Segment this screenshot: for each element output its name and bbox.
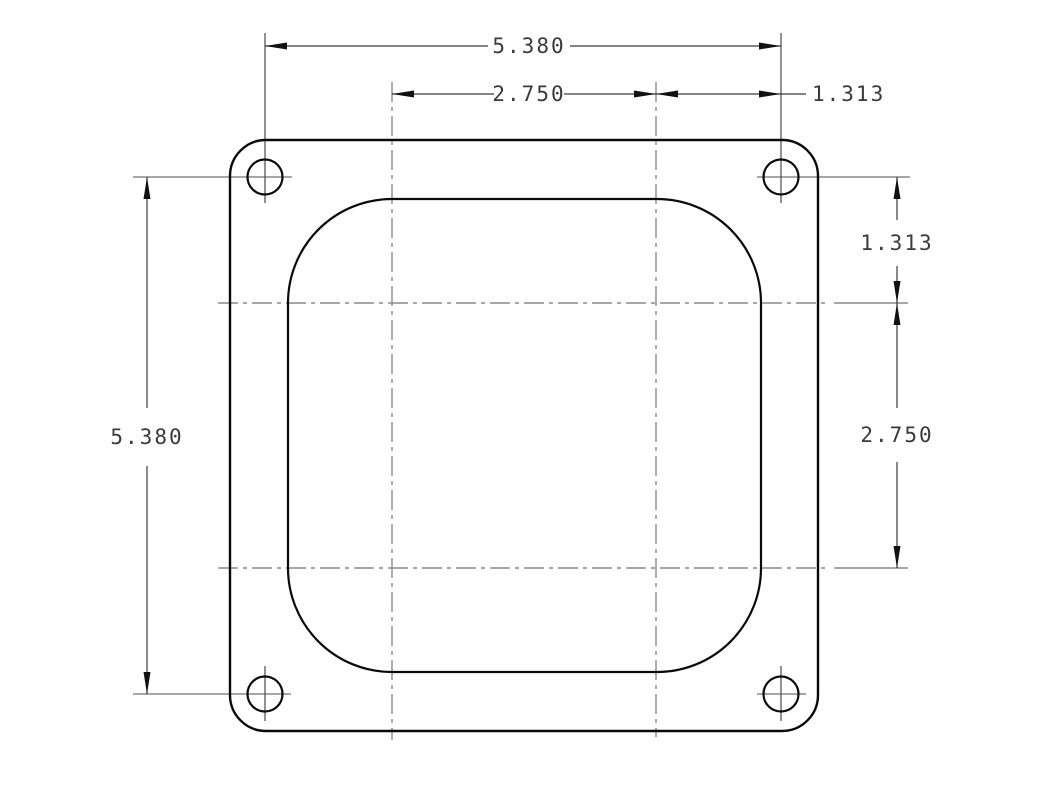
arrow-top-spacing-right bbox=[634, 91, 656, 98]
arrow-right-spacing-down bbox=[894, 546, 901, 568]
arrow-top-offset-left bbox=[656, 91, 678, 98]
arrow-left-overall-down bbox=[144, 672, 151, 694]
dim-text-right-offset: 1.313 bbox=[860, 231, 933, 255]
outline-group bbox=[230, 140, 818, 731]
arrow-top-spacing-left bbox=[392, 91, 414, 98]
arrow-left-overall-up bbox=[144, 177, 151, 199]
arrow-top-overall-left bbox=[265, 43, 287, 50]
dim-text-right-spacing: 2.750 bbox=[860, 423, 933, 447]
extension-line-group bbox=[265, 33, 781, 721]
flange-drawing: 5.380 2.750 1.313 5.380 1.313 2.750 bbox=[0, 0, 1042, 801]
dim-text-left-overall: 5.380 bbox=[110, 425, 183, 449]
bore-opening-outline bbox=[288, 199, 761, 672]
centerline-group bbox=[133, 82, 910, 740]
dim-text-top-offset: 1.313 bbox=[812, 82, 885, 106]
arrow-right-offset-down bbox=[894, 281, 901, 303]
dim-text-top-overall: 5.380 bbox=[492, 34, 565, 58]
dimension-text-group: 5.380 2.750 1.313 5.380 1.313 2.750 bbox=[110, 34, 933, 449]
arrow-right-offset-up bbox=[894, 177, 901, 199]
arrow-right-spacing-up bbox=[894, 303, 901, 325]
arrow-top-offset-right bbox=[759, 91, 781, 98]
dimension-line-group bbox=[147, 46, 897, 694]
drawing-canvas: 5.380 2.750 1.313 5.380 1.313 2.750 bbox=[0, 0, 1042, 801]
arrow-top-overall-right bbox=[759, 43, 781, 50]
dim-text-top-spacing: 2.750 bbox=[492, 82, 565, 106]
